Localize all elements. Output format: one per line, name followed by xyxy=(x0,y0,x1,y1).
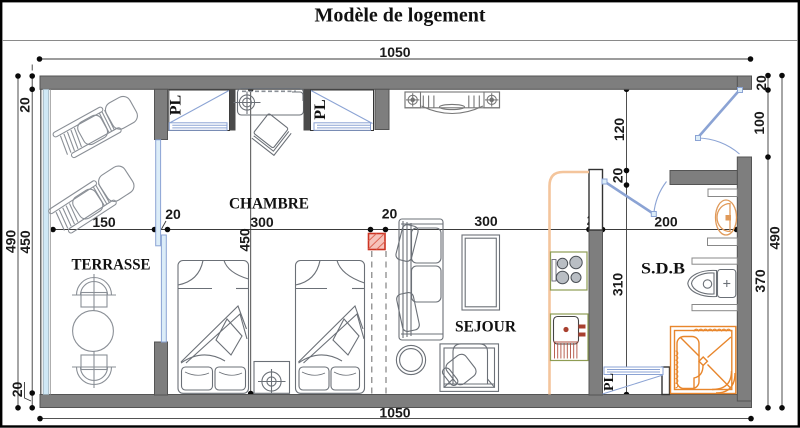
svg-text:SEJOUR: SEJOUR xyxy=(455,319,516,336)
svg-text:20: 20 xyxy=(753,75,769,91)
svg-text:20: 20 xyxy=(9,382,25,398)
svg-text:20: 20 xyxy=(610,168,626,184)
svg-text:Modèle de logement: Modèle de logement xyxy=(314,5,485,27)
svg-text:TERRASSE: TERRASSE xyxy=(72,257,151,274)
svg-text:S.D.B: S.D.B xyxy=(641,261,685,278)
svg-text:310: 310 xyxy=(610,273,626,297)
svg-text:300: 300 xyxy=(250,214,274,230)
svg-text:150: 150 xyxy=(92,214,116,230)
svg-text:PL: PL xyxy=(312,99,329,119)
svg-text:CHAMBRE: CHAMBRE xyxy=(229,196,309,213)
svg-text:490: 490 xyxy=(767,226,783,250)
svg-text:300: 300 xyxy=(474,213,498,229)
svg-text:20: 20 xyxy=(165,206,181,222)
svg-text:PL: PL xyxy=(168,95,185,115)
svg-text:370: 370 xyxy=(752,269,768,293)
svg-text:450: 450 xyxy=(237,228,253,252)
svg-text:20: 20 xyxy=(382,206,398,222)
svg-text:450: 450 xyxy=(17,230,33,254)
svg-text:100: 100 xyxy=(751,111,767,135)
svg-text:20: 20 xyxy=(17,97,33,113)
svg-text:120: 120 xyxy=(611,118,627,142)
svg-text:1050: 1050 xyxy=(379,44,410,60)
svg-text:200: 200 xyxy=(654,214,678,230)
svg-text:PL: PL xyxy=(602,373,617,391)
